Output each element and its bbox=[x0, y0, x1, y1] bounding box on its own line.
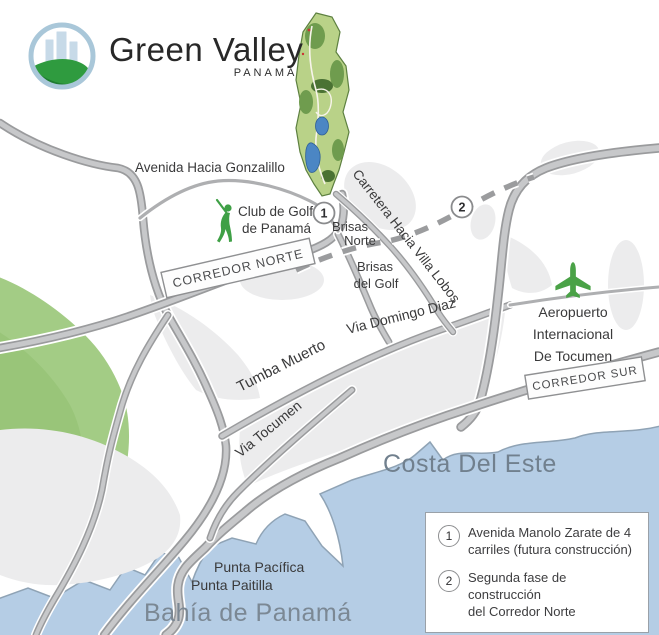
legend-text-1: Avenida Manolo Zarate de 4 carriles (fut… bbox=[468, 525, 632, 559]
label-aeropuerto-line1: Aeropuerto bbox=[538, 304, 607, 320]
legend-marker-1: 1 bbox=[438, 525, 460, 547]
label-punta-paitilla: Punta Paitilla bbox=[191, 577, 273, 593]
golf-icon bbox=[217, 200, 232, 243]
label-costa-del-este: Costa Del Este bbox=[383, 450, 557, 478]
legend-item-2: 2 Segunda fase de construcción del Corre… bbox=[438, 570, 638, 621]
legend-text-2: Segunda fase de construcción del Corredo… bbox=[468, 570, 638, 621]
label-brisas-norte-line2: Norte bbox=[344, 233, 376, 248]
masterplan-lake-upper bbox=[316, 117, 329, 135]
label-brisas-golf-line2: del Golf bbox=[354, 276, 399, 291]
legend-box: 1 Avenida Manolo Zarate de 4 carriles (f… bbox=[425, 512, 649, 633]
logo-title: Green Valley bbox=[109, 33, 303, 68]
label-bahia: Bahía de Panamá bbox=[144, 599, 352, 627]
green-valley-logo: Green Valley PANAMÁ bbox=[28, 22, 303, 90]
label-brisas-norte-line1: Brisas bbox=[332, 219, 369, 234]
map-canvas: CORREDOR NORTE CORREDOR SUR 1 2 Avenida … bbox=[0, 0, 659, 635]
label-brisas-golf-line1: Brisas bbox=[357, 259, 394, 274]
green-valley-logo-icon bbox=[28, 22, 96, 90]
label-aeropuerto-line2: Internacional bbox=[533, 326, 613, 342]
label-golf-line1: Club de Golf bbox=[238, 204, 313, 219]
marker-2-number: 2 bbox=[459, 201, 466, 215]
label-gonzalillo: Avenida Hacia Gonzalillo bbox=[135, 160, 285, 175]
label-punta-pacifica: Punta Pacífica bbox=[214, 559, 304, 575]
label-aeropuerto-line3: De Tocumen bbox=[534, 348, 612, 364]
marker-1-number: 1 bbox=[321, 207, 328, 221]
green-valley-masterplan bbox=[296, 13, 349, 196]
legend-marker-2: 2 bbox=[438, 570, 460, 592]
label-golf-line2: de Panamá bbox=[242, 221, 312, 236]
marker-2: 2 bbox=[452, 197, 473, 218]
legend-item-1: 1 Avenida Manolo Zarate de 4 carriles (f… bbox=[438, 525, 638, 559]
logo-subtitle: PANAMÁ bbox=[109, 67, 303, 79]
